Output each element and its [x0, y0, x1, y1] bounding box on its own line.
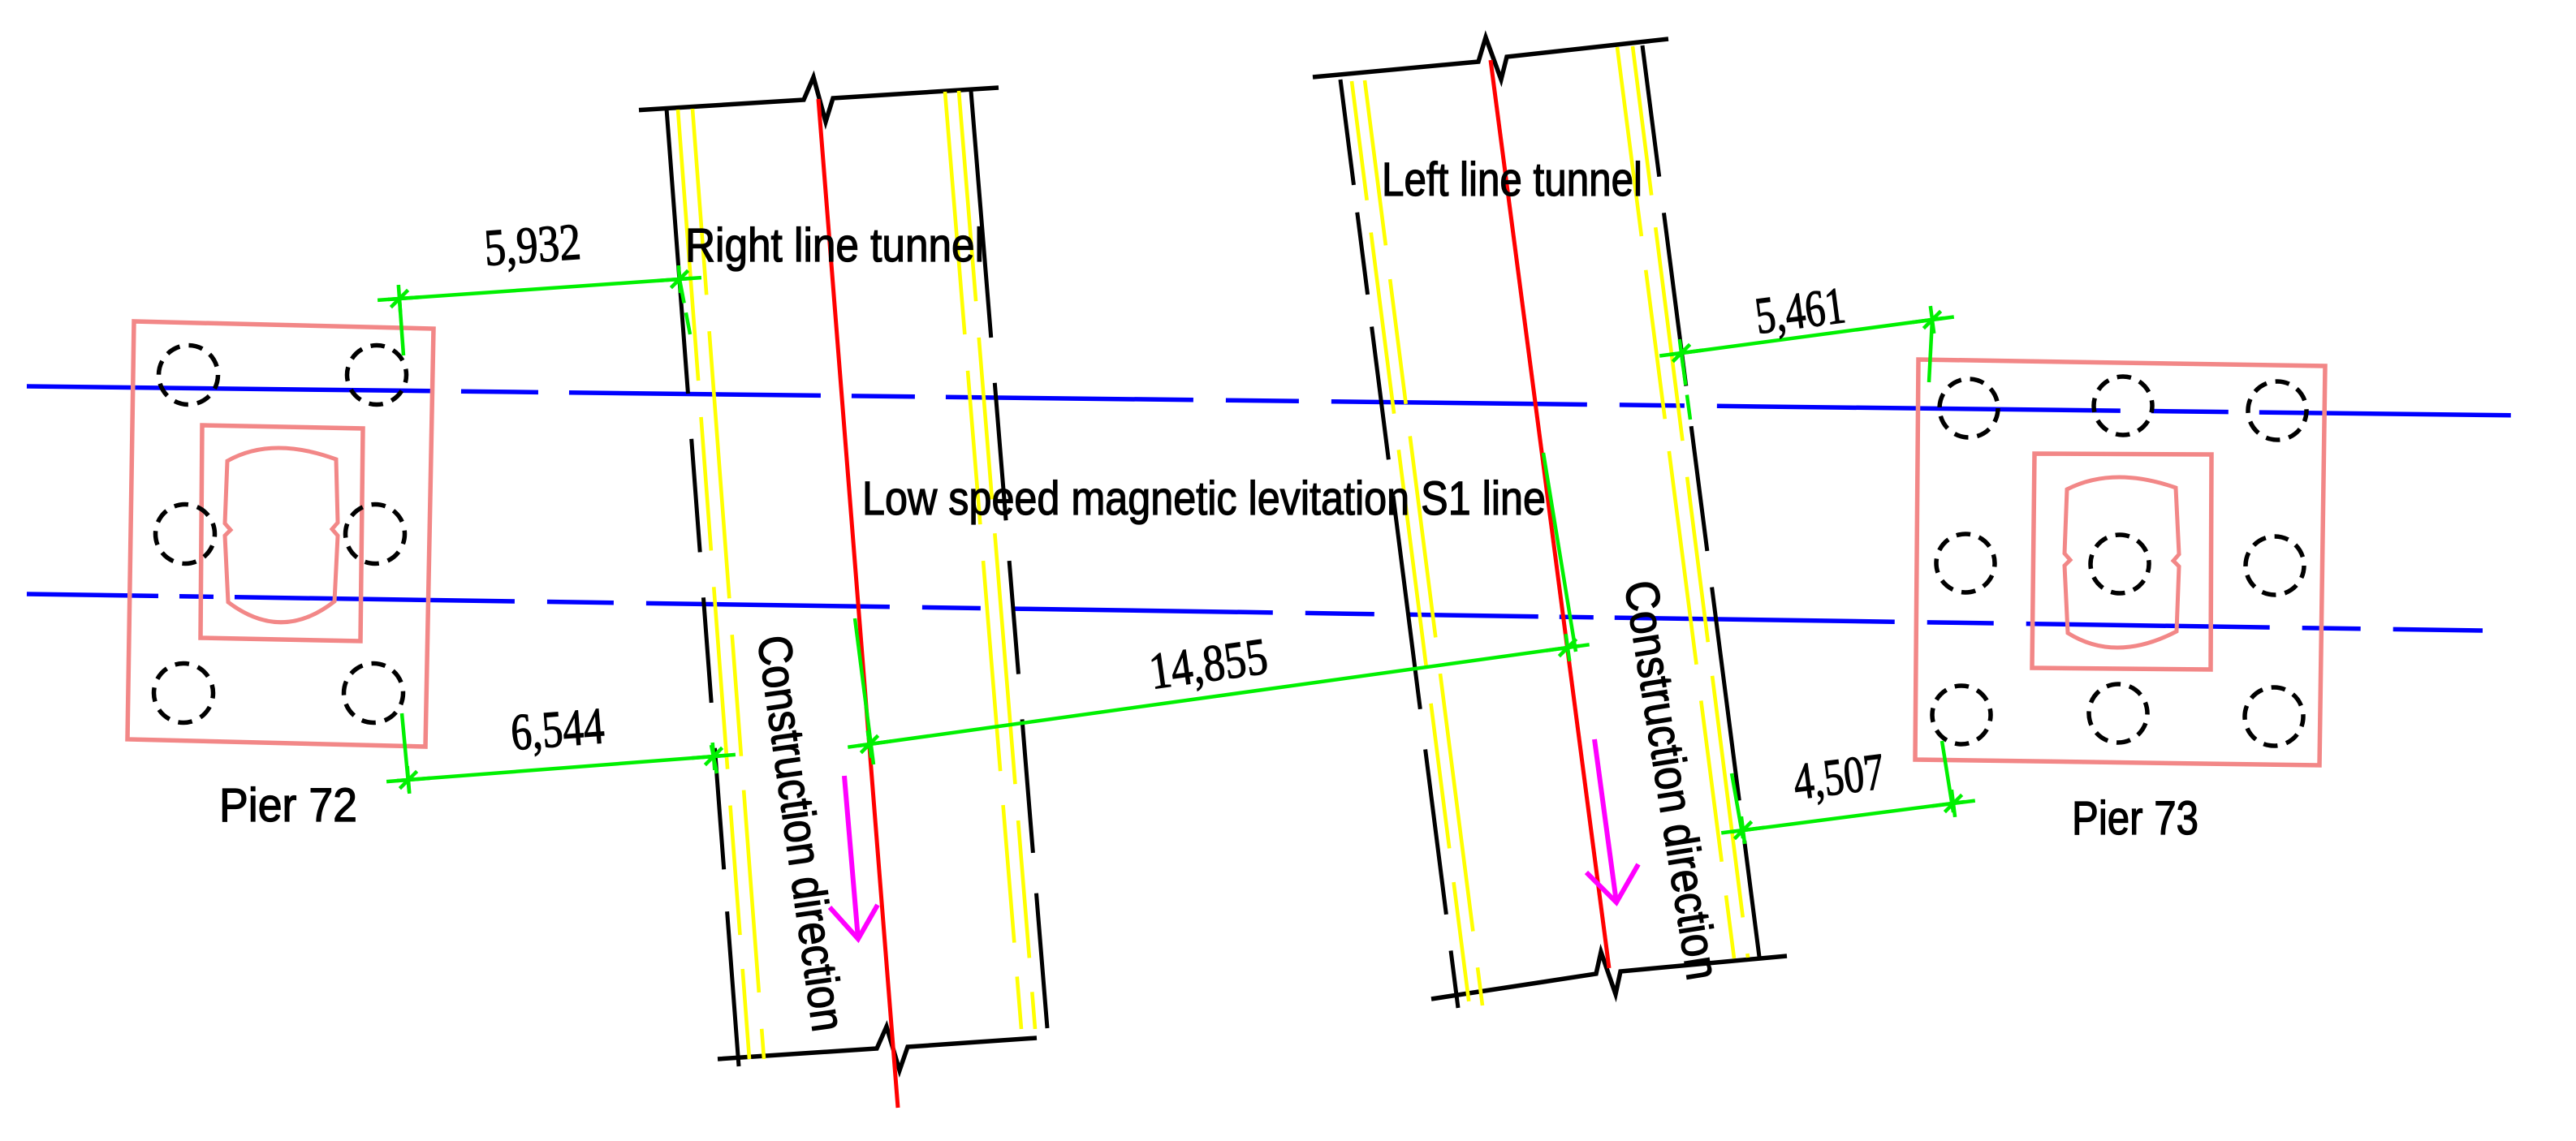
svg-text:Pier 73: Pier 73: [2072, 792, 2198, 845]
svg-text:Left line tunnel: Left line tunnel: [1382, 153, 1642, 206]
svg-text:4,507: 4,507: [1790, 742, 1888, 810]
svg-text:5,932: 5,932: [482, 213, 583, 277]
svg-text:Pier 72: Pier 72: [219, 779, 357, 832]
svg-text:5,461: 5,461: [1752, 276, 1849, 345]
svg-text:Right line tunnel: Right line tunnel: [685, 219, 984, 272]
svg-text:Low speed magnetic levitation: Low speed magnetic levitation S1 line: [862, 472, 1546, 525]
svg-text:6,544: 6,544: [509, 696, 606, 761]
